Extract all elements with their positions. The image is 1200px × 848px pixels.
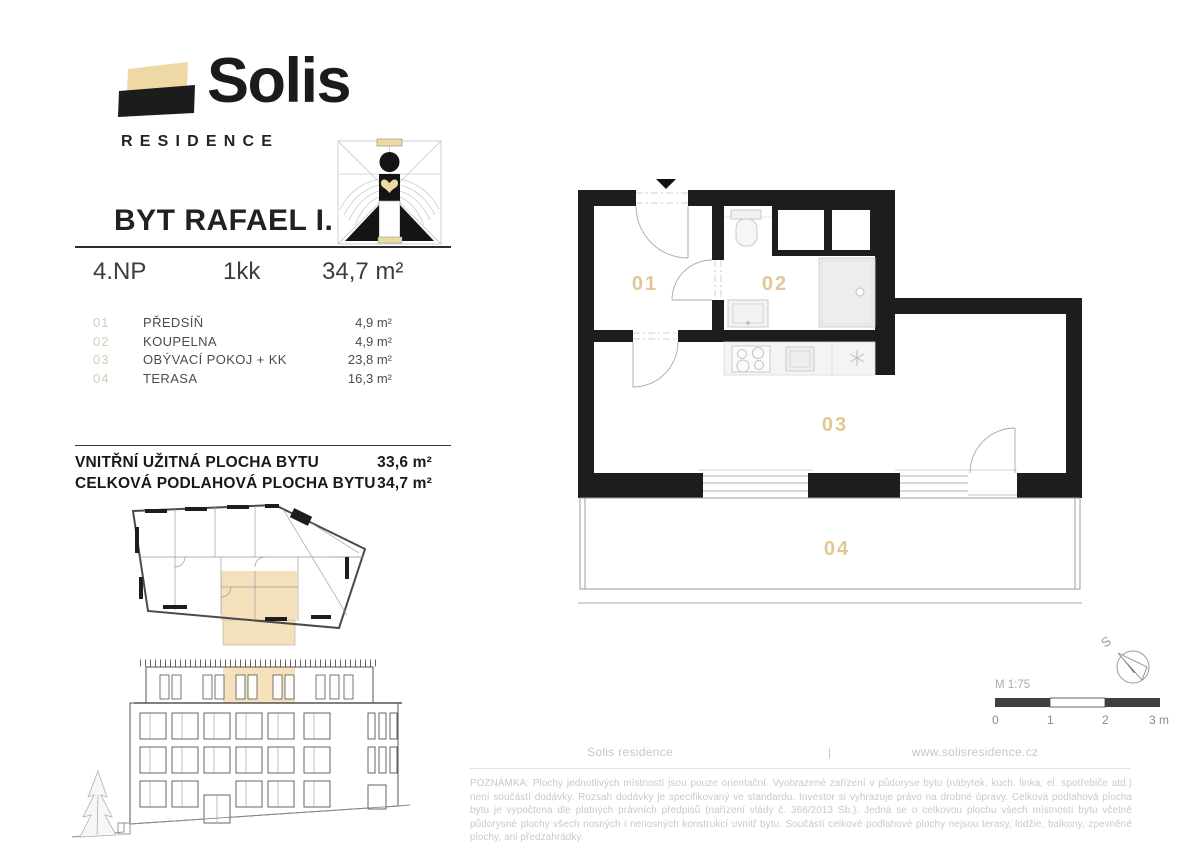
header-divider	[75, 246, 451, 248]
total-label: CELKOVÁ PODLAHOVÁ PLOCHA BYTU	[75, 473, 376, 494]
brand-name: Solis	[207, 50, 350, 113]
unit-layout: 1kk	[223, 258, 260, 286]
room-area: 23,8 m²	[328, 351, 392, 370]
room-name: OBÝVACÍ POKOJ + KK	[143, 351, 328, 370]
page-title: BYT RAFAEL I.	[114, 204, 333, 238]
toilet-icon	[731, 210, 761, 219]
scale-and-compass: S M 1:75 0 1 2 3 m	[985, 632, 1175, 732]
scale-tick: 3 m	[1149, 713, 1169, 727]
room-number: 02	[93, 333, 143, 352]
footer-brand: Solis residence	[570, 745, 690, 759]
room-number: 04	[93, 370, 143, 389]
scale-bar: M 1:75 0 1 2 3 m	[992, 679, 1169, 727]
scale-tick: 0	[992, 713, 999, 727]
room-number: 01	[93, 314, 143, 333]
room-name: TERASA	[143, 370, 328, 389]
scale-label: M 1:75	[995, 679, 1030, 691]
total-value: 33,6 m²	[377, 452, 432, 473]
rafael-angel-icon	[332, 133, 447, 246]
room-label-01: 01	[632, 273, 658, 295]
solis-logo-icon	[118, 60, 208, 120]
building-elevation	[68, 645, 413, 845]
kitchen-counter	[724, 342, 875, 375]
opening-axes	[633, 193, 721, 339]
tree-icon	[80, 771, 116, 837]
scale-tick: 2	[1102, 713, 1109, 727]
scale-tick: 1	[1047, 713, 1054, 727]
bathtub-icon	[819, 258, 875, 327]
room-row: 03 OBÝVACÍ POKOJ + KK 23,8 m²	[93, 351, 392, 370]
entrance-marker-icon	[656, 179, 676, 189]
ground-line	[72, 805, 410, 837]
north-compass-icon: S	[1098, 633, 1149, 683]
room-name: PŘEDSÍŇ	[143, 314, 328, 333]
total-row: VNITŘNÍ UŽITNÁ PLOCHA BYTU 33,6 m²	[75, 452, 432, 473]
footer-divider: |	[828, 745, 831, 759]
brand-subtitle: RESIDENCE	[121, 133, 279, 151]
floorplan-brochure-page: Solis RESIDENCE BYT RAFAEL I. 4.NP 1kk 3…	[0, 0, 1200, 848]
room-area: 16,3 m²	[328, 370, 392, 389]
total-value: 34,7 m²	[377, 473, 432, 494]
floor-plan: 01 02 03 04	[570, 170, 1115, 620]
totals-divider	[75, 445, 451, 446]
footer-rule	[470, 768, 1130, 769]
floor-overview-plan	[115, 497, 410, 649]
unit-total-area: 34,7 m²	[322, 258, 403, 286]
room-name: KOUPELNA	[143, 333, 328, 352]
room-area: 4,9 m²	[328, 314, 392, 333]
total-label: VNITŘNÍ UŽITNÁ PLOCHA BYTU	[75, 452, 319, 473]
footer-url: www.solisresidence.cz	[905, 745, 1045, 759]
room-label-03: 03	[822, 414, 848, 436]
total-row: CELKOVÁ PODLAHOVÁ PLOCHA BYTU 34,7 m²	[75, 473, 432, 494]
room-row: 02 KOUPELNA 4,9 m²	[93, 333, 392, 352]
room-row: 01 PŘEDSÍŇ 4,9 m²	[93, 314, 392, 333]
room-number: 03	[93, 351, 143, 370]
room-row: 04 TERASA 16,3 m²	[93, 370, 392, 389]
room-label-02: 02	[762, 273, 788, 295]
room-label-04: 04	[824, 538, 850, 560]
area-totals: VNITŘNÍ UŽITNÁ PLOCHA BYTU 33,6 m² CELKO…	[75, 452, 432, 494]
room-area: 4,9 m²	[328, 333, 392, 352]
shaft-niches	[778, 210, 870, 250]
legal-note: POZNÁMKA: Plochy jednotlivých místností …	[470, 777, 1132, 845]
unit-floor: 4.NP	[93, 258, 146, 286]
room-list: 01 PŘEDSÍŇ 4,9 m² 02 KOUPELNA 4,9 m² 03 …	[93, 314, 392, 388]
north-label: S	[1098, 633, 1114, 650]
